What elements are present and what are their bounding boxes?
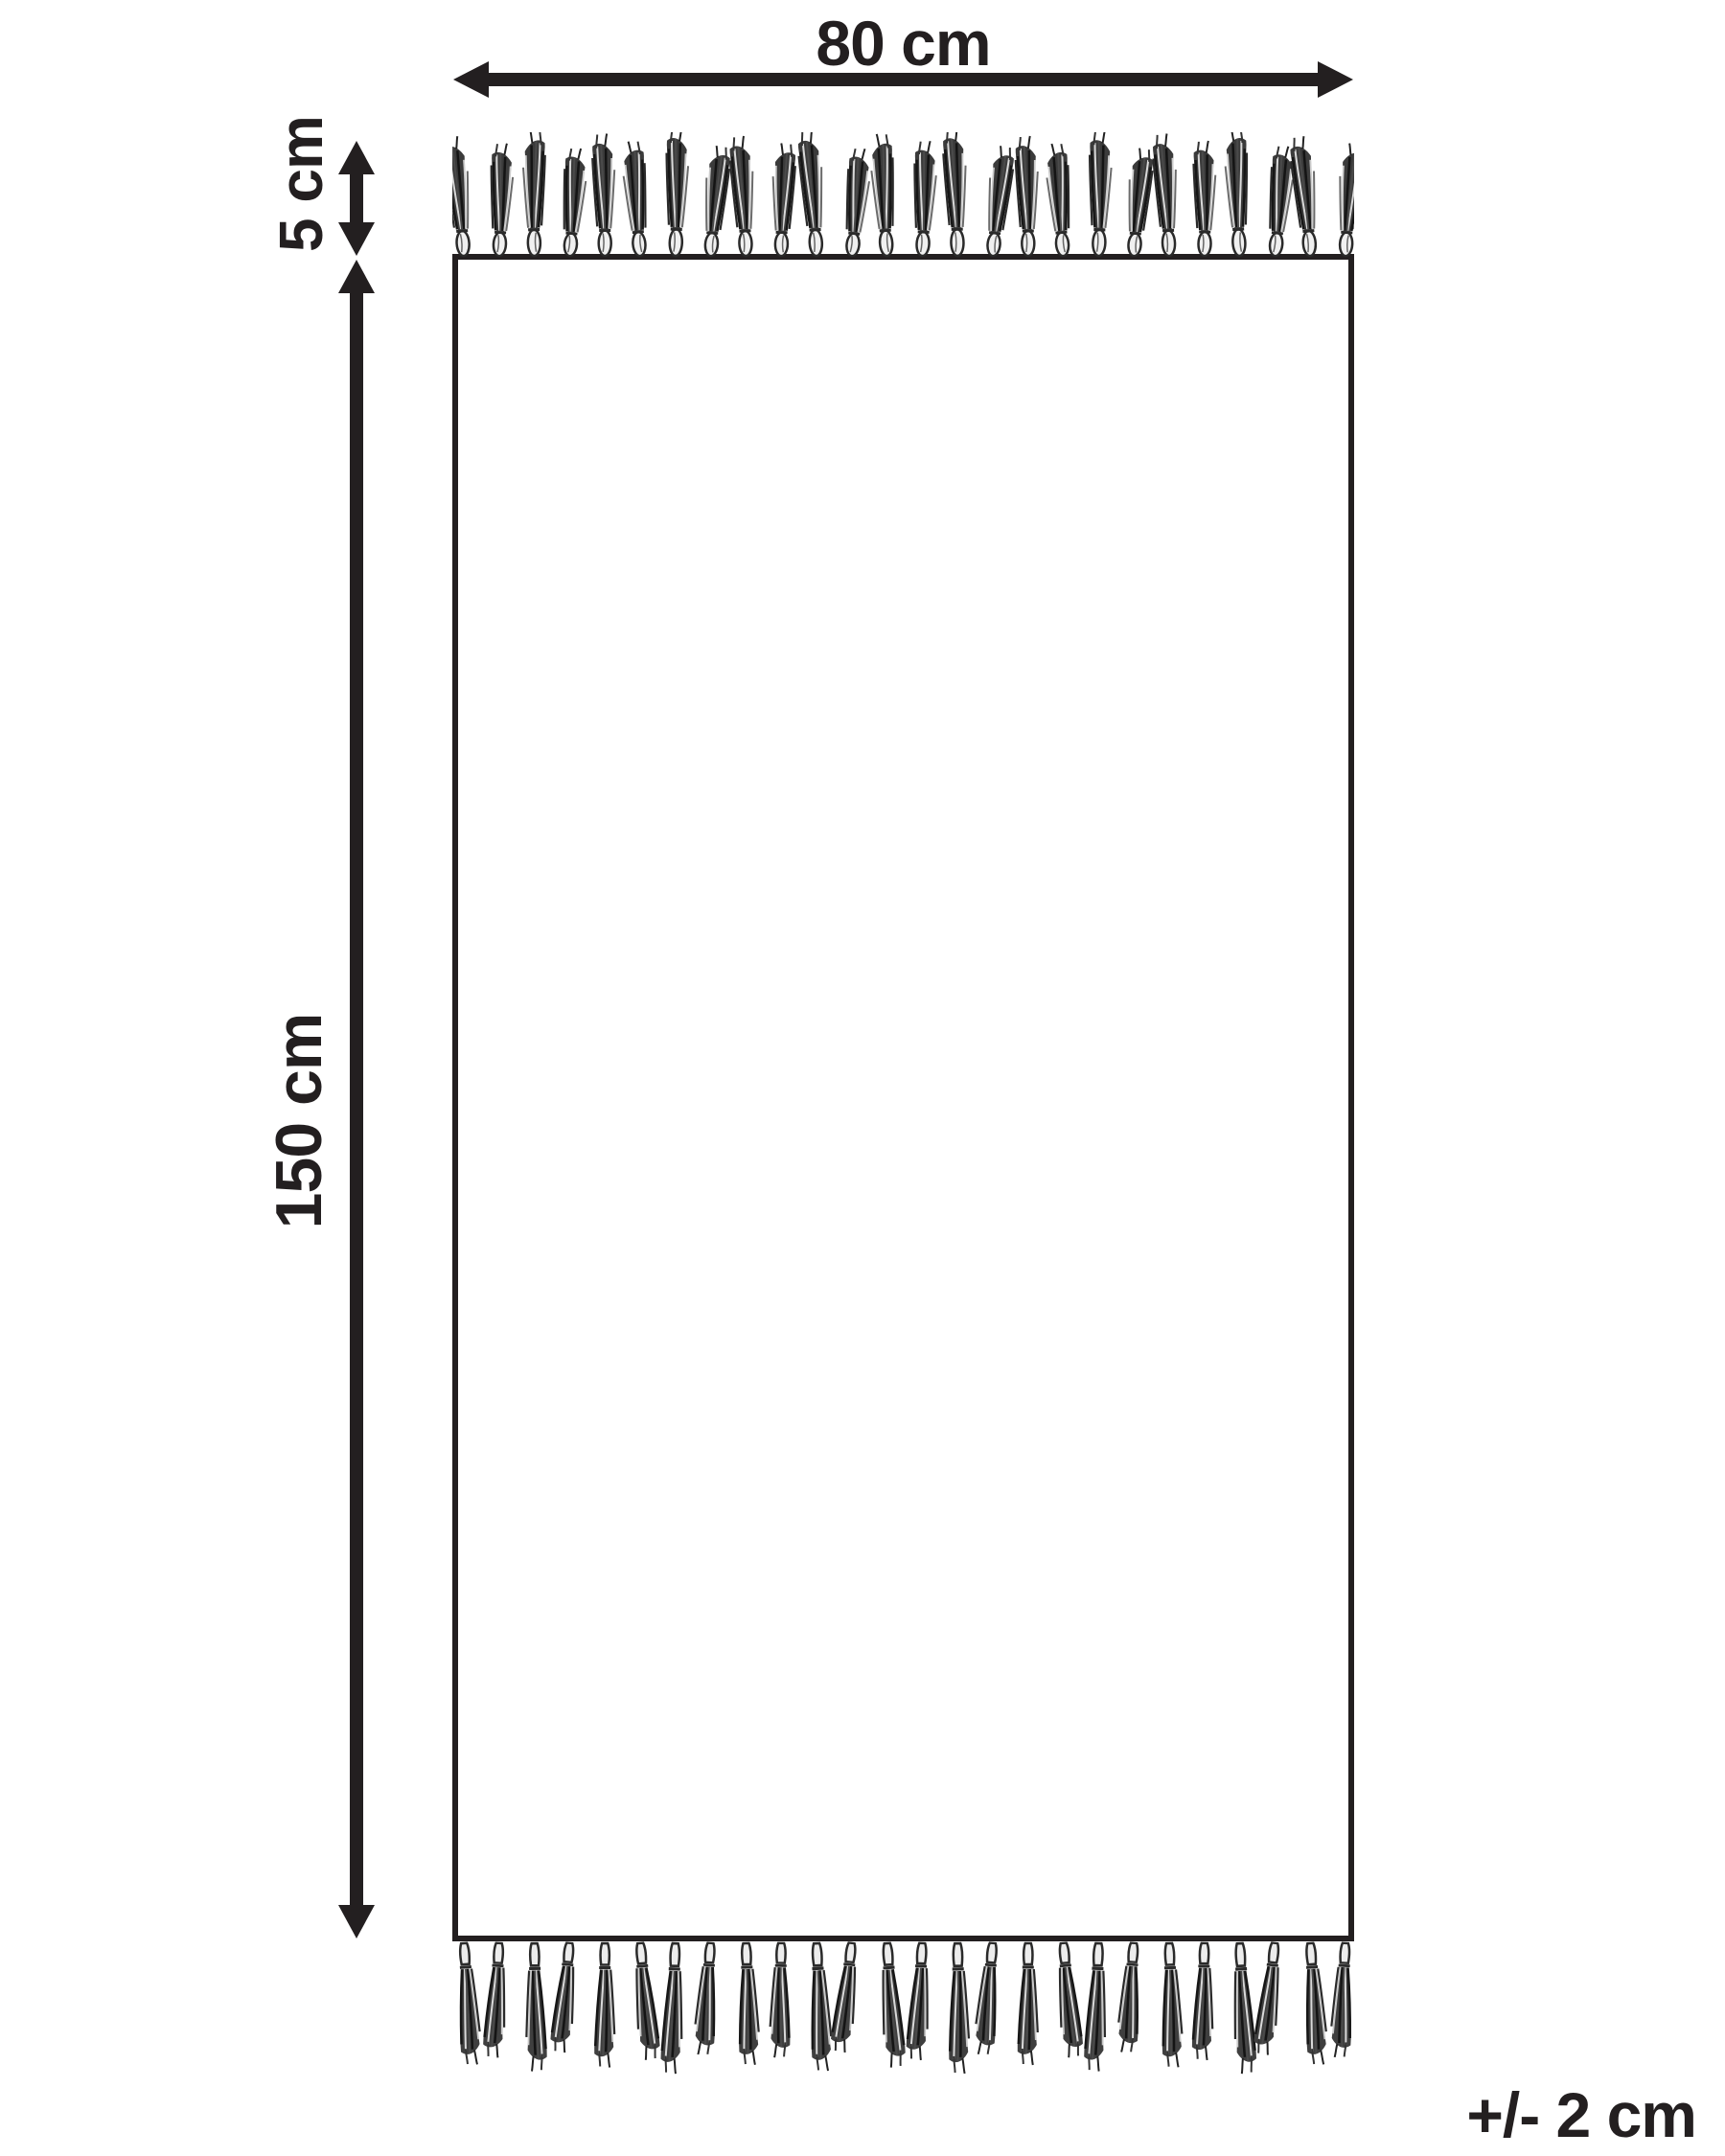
width-dimension-arrow	[452, 58, 1354, 101]
fringe-dimension-label: 5 cm	[270, 116, 332, 252]
tassel	[1159, 1943, 1184, 2068]
tassel	[839, 148, 873, 257]
tassel	[869, 133, 900, 257]
tassel	[770, 1943, 792, 2058]
tassel	[701, 146, 731, 257]
tassel	[878, 1942, 907, 2068]
length-dimension-label: 150 cm	[266, 1014, 332, 1229]
fringe-dimension-arrow	[335, 141, 378, 256]
tassel	[1192, 1943, 1214, 2060]
arrow-shaft	[350, 169, 363, 228]
dimension-diagram: 80 cm 5 cm 150 cm +/- 2 cm	[0, 0, 1725, 2156]
tassel	[1230, 1943, 1257, 2075]
tassel	[1084, 1943, 1109, 2072]
tassel	[487, 143, 515, 257]
fringe-bottom-row	[453, 1942, 1354, 2075]
tassel	[1336, 143, 1354, 257]
tassel	[830, 1942, 862, 2053]
tassel	[1330, 1942, 1354, 2057]
tassel	[557, 148, 588, 257]
tassel	[482, 1942, 508, 2057]
tassel	[909, 140, 937, 256]
tassel	[693, 1942, 721, 2055]
arrow-shaft	[350, 287, 363, 1911]
tassel	[1086, 132, 1113, 256]
tassel	[983, 146, 1015, 258]
arrowhead-down	[338, 1905, 375, 1938]
rug-fringe-bottom	[452, 1936, 1354, 2079]
tassel	[1044, 143, 1075, 257]
length-dimension-arrow	[335, 260, 378, 1938]
tassel	[729, 136, 755, 257]
tassel	[663, 132, 690, 256]
rug-outline	[452, 254, 1354, 1941]
rug-fringe-top	[452, 132, 1354, 259]
tassel	[1016, 136, 1038, 256]
arrow-shaft	[483, 73, 1323, 86]
tolerance-label: +/- 2 cm	[1466, 2083, 1696, 2146]
tassel	[947, 1943, 969, 2074]
arrowhead-down	[338, 222, 375, 256]
tassel	[522, 132, 546, 256]
tassel	[906, 1942, 931, 2060]
tassel	[974, 1942, 1003, 2055]
tassel	[943, 132, 967, 256]
tassel	[806, 1943, 833, 2072]
tassel	[771, 143, 795, 256]
tassel	[453, 1942, 482, 2065]
tassel	[797, 132, 826, 257]
tassel	[660, 1943, 685, 2075]
tassel	[621, 140, 653, 257]
tassel	[1153, 133, 1179, 256]
tassel	[594, 1943, 614, 2068]
tassel	[525, 1943, 547, 2072]
tassel	[452, 136, 473, 257]
tassel	[1290, 136, 1321, 257]
tassel	[1192, 141, 1216, 256]
tassel	[1253, 1942, 1284, 2055]
tassel	[592, 134, 614, 257]
tassel	[1116, 1942, 1144, 2053]
tassel	[735, 1943, 759, 2066]
tassel	[1224, 132, 1253, 257]
fringe-top-row	[452, 132, 1354, 257]
tassel	[1054, 1942, 1084, 2058]
tassel	[1018, 1943, 1038, 2065]
tassel	[1299, 1942, 1328, 2065]
tassel	[549, 1942, 579, 2053]
tassel	[1124, 148, 1154, 257]
arrowhead-right	[1318, 61, 1353, 98]
tassel	[631, 1942, 661, 2060]
